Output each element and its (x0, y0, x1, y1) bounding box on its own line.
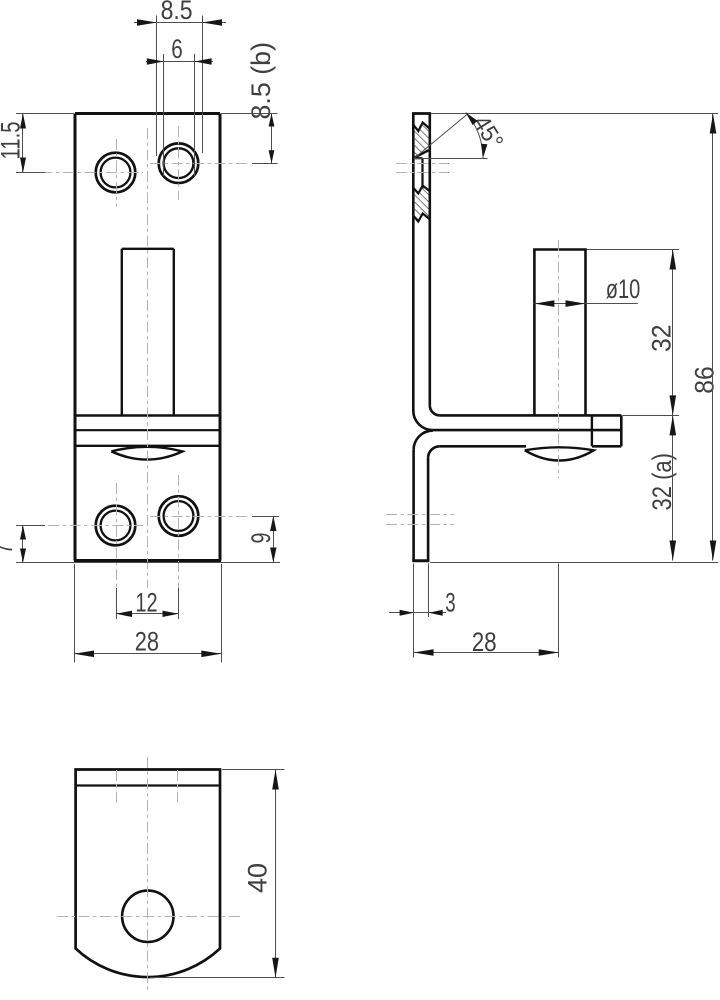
svg-text:28: 28 (135, 627, 159, 657)
svg-text:8.5: 8.5 (161, 0, 193, 25)
svg-text:8.5 (b): 8.5 (b) (246, 42, 276, 120)
svg-text:86: 86 (690, 366, 720, 394)
svg-text:6: 6 (171, 34, 183, 64)
svg-text:ø10: ø10 (606, 274, 641, 304)
svg-text:9: 9 (246, 533, 276, 544)
svg-text:7: 7 (0, 543, 18, 554)
svg-text:40: 40 (243, 863, 273, 893)
svg-text:3: 3 (445, 588, 455, 618)
